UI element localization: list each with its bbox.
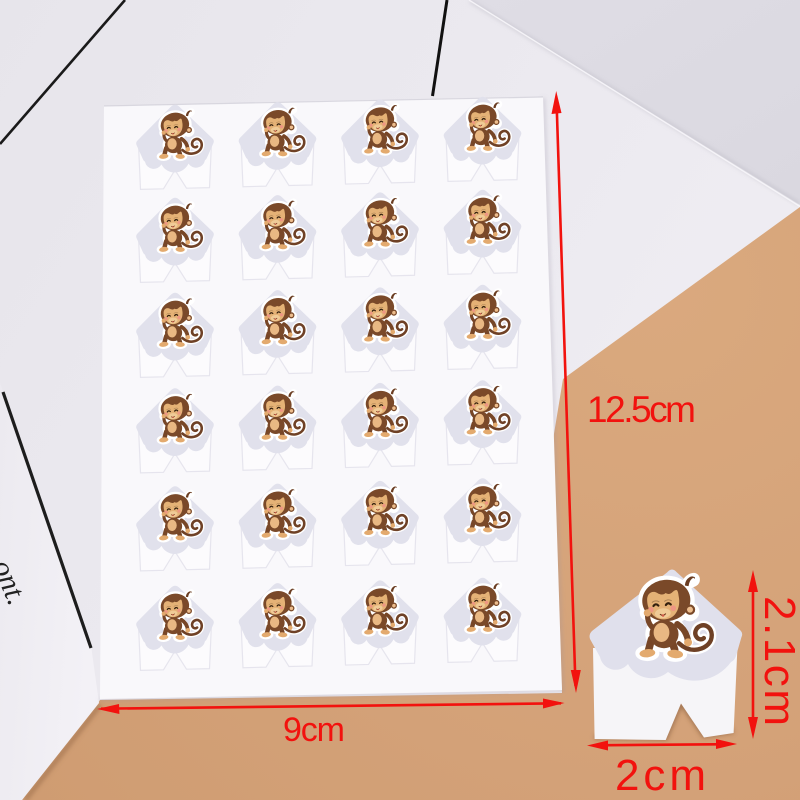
svg-text:9cm: 9cm xyxy=(283,711,345,749)
svg-text:2.1cm: 2.1cm xyxy=(755,596,800,726)
svg-text:2cm: 2cm xyxy=(615,751,706,800)
svg-text:12.5cm: 12.5cm xyxy=(587,389,696,430)
